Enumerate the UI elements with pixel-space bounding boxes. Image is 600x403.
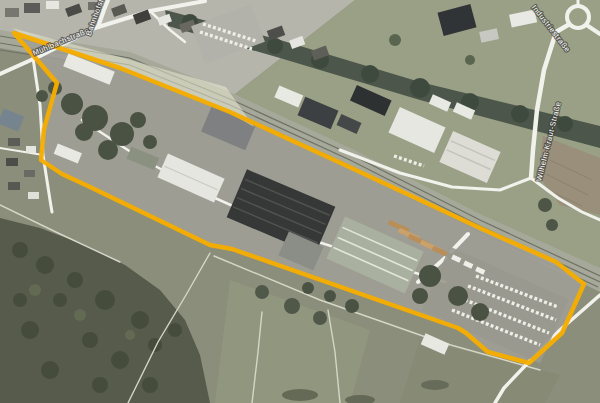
satellite-map[interactable]: Mühlbachstraße Mühlbachstraße Bahnhofstr… [0,0,600,403]
